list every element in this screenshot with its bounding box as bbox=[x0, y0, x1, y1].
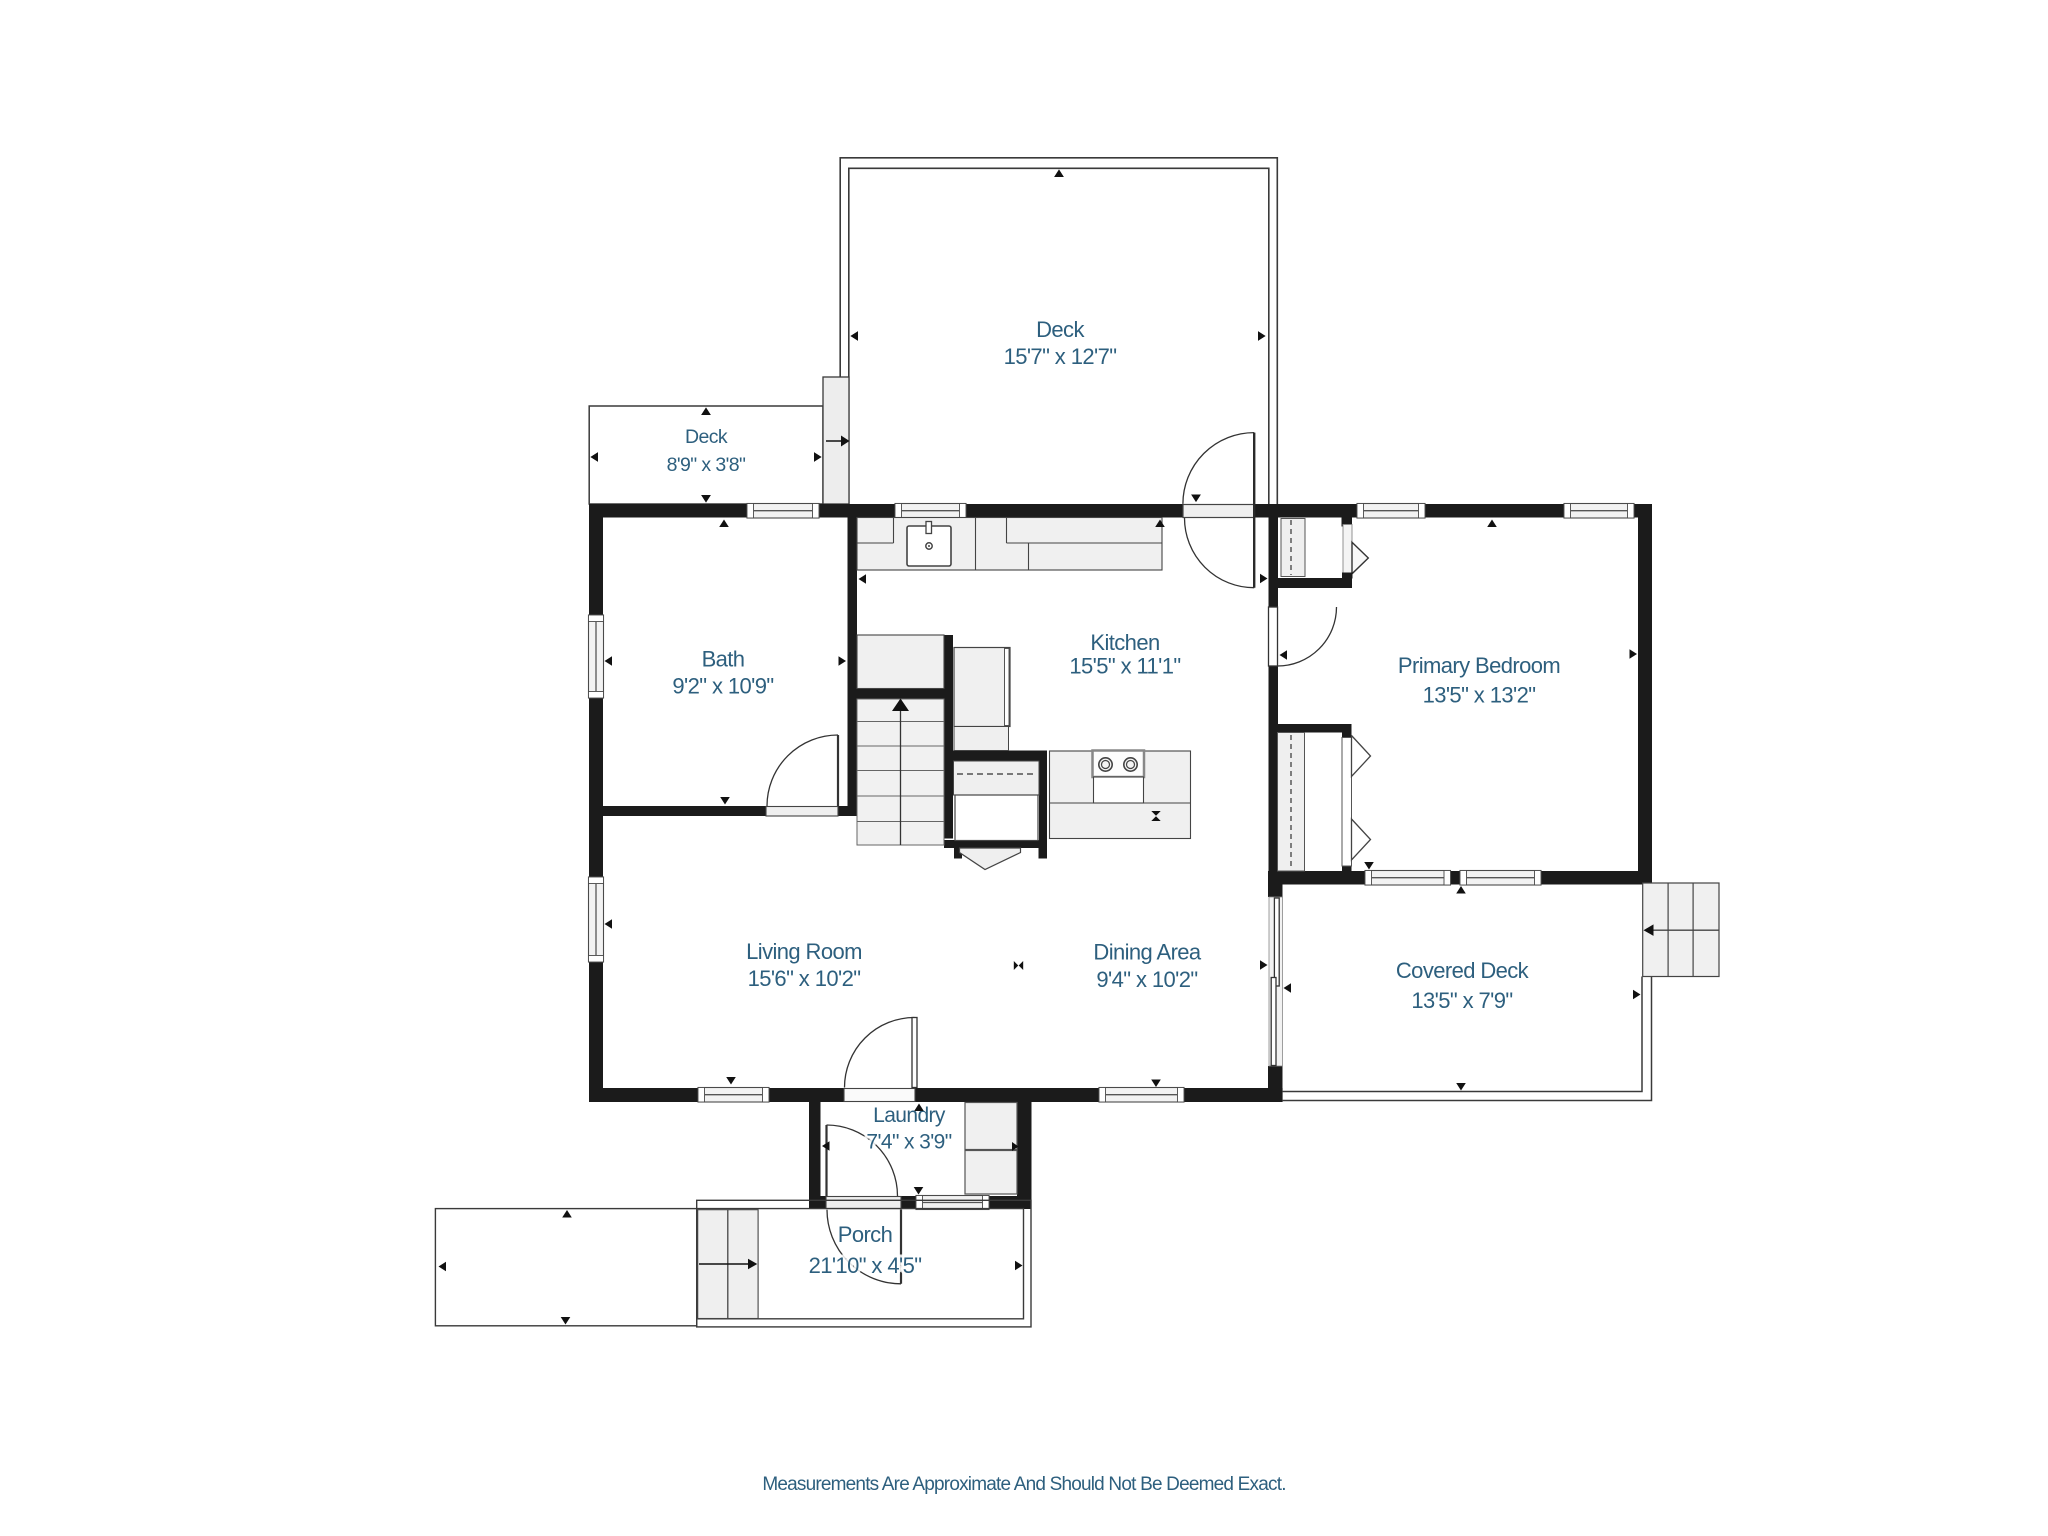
svg-text:9'2" x 10'9": 9'2" x 10'9" bbox=[672, 674, 773, 699]
svg-text:15'7" x 12'7": 15'7" x 12'7" bbox=[1004, 344, 1117, 369]
svg-text:13'5" x 13'2": 13'5" x 13'2" bbox=[1423, 683, 1536, 708]
svg-text:Kitchen: Kitchen bbox=[1090, 630, 1159, 655]
svg-text:8'9" x 3'8": 8'9" x 3'8" bbox=[667, 454, 746, 476]
svg-text:Measurements Are Approximate A: Measurements Are Approximate And Should … bbox=[762, 1474, 1285, 1495]
svg-text:Deck: Deck bbox=[685, 426, 728, 448]
svg-text:Living Room: Living Room bbox=[746, 939, 862, 964]
svg-text:7'4" x 3'9": 7'4" x 3'9" bbox=[866, 1131, 951, 1154]
svg-text:Bath: Bath bbox=[702, 647, 745, 672]
svg-text:Laundry: Laundry bbox=[873, 1104, 946, 1127]
svg-text:Dining Area: Dining Area bbox=[1093, 940, 1202, 965]
svg-text:9'4" x 10'2": 9'4" x 10'2" bbox=[1096, 967, 1197, 992]
svg-text:15'6" x 10'2": 15'6" x 10'2" bbox=[748, 966, 861, 991]
svg-text:Primary Bedroom: Primary Bedroom bbox=[1398, 653, 1560, 678]
svg-text:Porch: Porch bbox=[838, 1222, 892, 1247]
svg-text:Deck: Deck bbox=[1036, 317, 1085, 342]
svg-text:21'10" x 4'5": 21'10" x 4'5" bbox=[809, 1253, 922, 1278]
svg-text:13'5" x 7'9": 13'5" x 7'9" bbox=[1411, 988, 1512, 1013]
svg-text:Covered Deck: Covered Deck bbox=[1396, 958, 1530, 983]
svg-text:15'5" x 11'1": 15'5" x 11'1" bbox=[1069, 654, 1180, 679]
